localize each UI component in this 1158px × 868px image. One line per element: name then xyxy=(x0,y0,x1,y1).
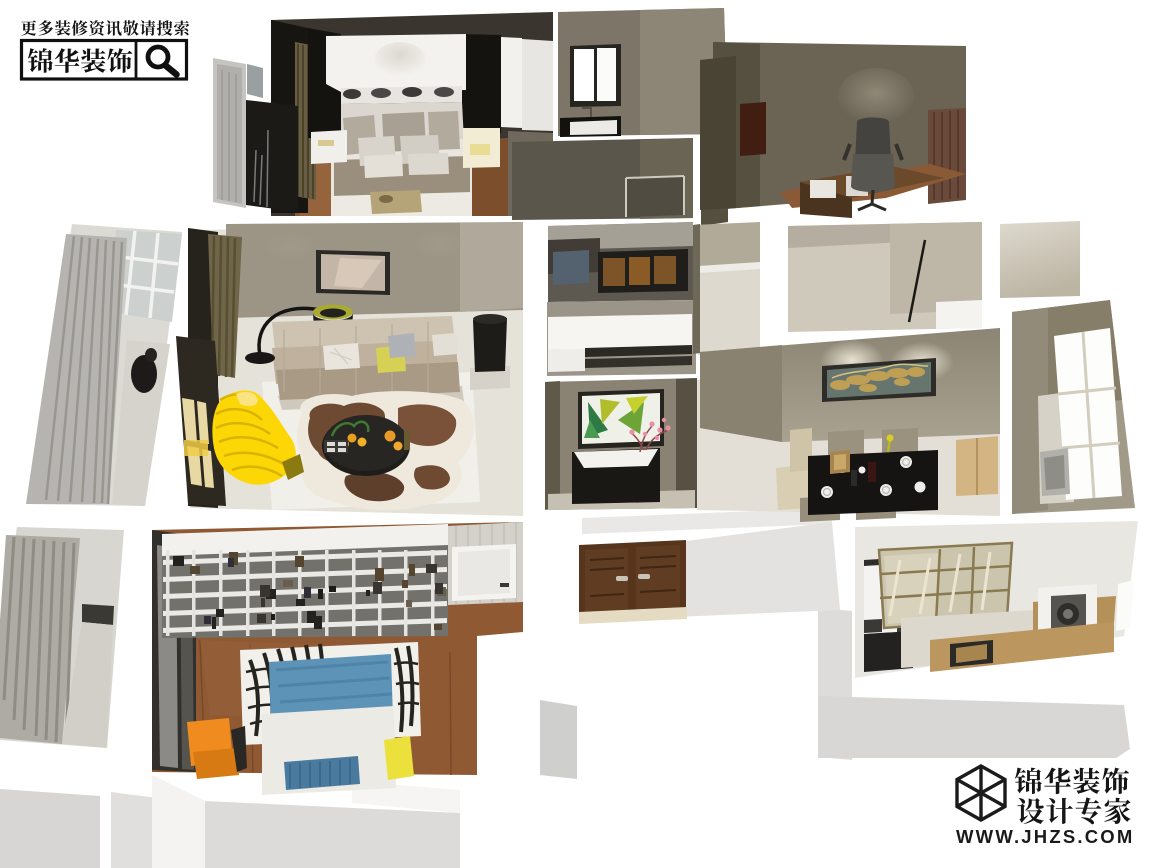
svg-text:WWW.JHZS.COM: WWW.JHZS.COM xyxy=(956,826,1135,847)
